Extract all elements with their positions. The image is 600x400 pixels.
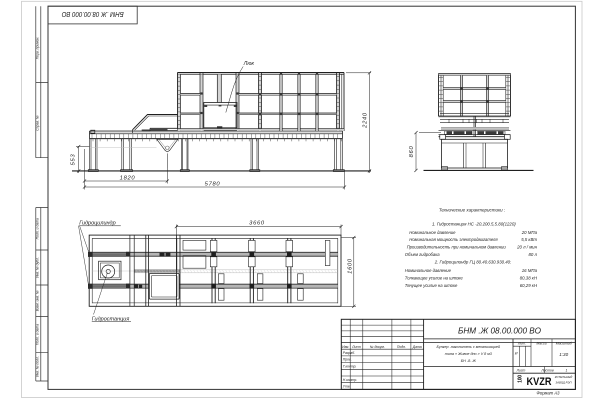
svg-text:60,29 кН: 60,29 кН [520,283,538,288]
svg-text:Подп.: Подп. [397,345,406,349]
svg-text:1:30: 1:30 [559,352,568,357]
svg-text:Лит.: Лит. [517,342,526,346]
svg-text:КОТЕЛЬНЫЙ: КОТЕЛЬНЫЙ [555,375,573,379]
svg-text:Перв. примен.: Перв. примен. [36,37,40,60]
svg-text:100: 100 [518,375,524,383]
svg-text:1: 1 [566,368,568,372]
svg-text:20 л / мин: 20 л / мин [516,245,538,250]
svg-text:Бункер -накопитель с механизац: Бункер -накопитель с механизацией [437,345,500,349]
svg-text:типа « Живое дно » V 8 м3: типа « Живое дно » V 8 м3 [445,352,493,356]
svg-text:Подп. и дата: Подп. и дата [36,218,40,239]
svg-text:553: 553 [71,154,77,166]
svg-text:1600: 1600 [348,258,354,274]
svg-text:Инв. № подл.: Инв. № подл. [36,356,40,377]
svg-text:Разраб.: Разраб. [343,351,355,355]
svg-text:Номинальное давление: Номинальное давление [405,268,452,273]
svg-text:БНМ .Ж 08.00.000 ВО: БНМ .Ж 08.00.000 ВО [62,10,124,19]
svg-text:Формат А3: Формат А3 [537,391,561,396]
svg-text:1820: 1820 [120,176,136,182]
svg-text:1. Гидростанция НС -20.200.5,: 1. Гидростанция НС -20.200.5,5.80(1220) [432,222,516,227]
svg-text:Люк: Люк [243,61,255,67]
svg-text:Листов: Листов [540,368,554,372]
svg-text:Инв. № дубл.: Инв. № дубл. [36,257,40,278]
svg-text:Взам. инв. №: Взам. инв. № [36,290,40,311]
svg-text:Масштаб: Масштаб [556,342,572,346]
svg-text:Дата: Дата [412,345,422,349]
svg-text:860: 860 [409,146,415,158]
svg-text:2240: 2240 [363,112,369,129]
svg-text:3660: 3660 [249,220,265,226]
svg-text:Технические характеристики :: Технические характеристики : [439,208,506,213]
svg-text:Подп. и дата: Подп. и дата [36,324,40,345]
svg-text:Объем гидробака: Объем гидробака [405,252,440,257]
svg-text:Номинальная мощность электрод: Номинальная мощность электродвигателя [409,237,498,242]
svg-text:16 МПа: 16 МПа [522,268,538,273]
svg-text:2. Гидроцилиндр ГЦ 80.40.630.: 2. Гидроцилиндр ГЦ 80.40.630.930.40: [434,260,512,265]
svg-text:Н.контр.: Н.контр. [343,378,357,382]
svg-text:№ докум.: № докум. [370,345,385,349]
svg-text:80,38 кН: 80,38 кН [520,276,538,281]
svg-text:Масса: Масса [536,342,546,346]
svg-text:Изм.: Изм. [342,345,349,349]
svg-text:Толкающее усилие на штоке: Толкающее усилие на штоке [405,276,464,281]
svg-text:KVZR: KVZR [527,376,552,388]
svg-text:Пров.: Пров. [343,358,352,362]
svg-text:Производительность при номина: Производительность при номинальном давле… [407,245,507,250]
svg-text:БН -8- Ж: БН -8- Ж [461,359,477,363]
svg-text:Т.контр.: Т.контр. [343,364,357,368]
svg-text:Утв.: Утв. [343,385,351,389]
svg-text:Лист: Лист [351,345,361,349]
svg-text:БНМ .Ж 08.00.000 ВО: БНМ .Ж 08.00.000 ВО [458,326,541,336]
svg-text:5,5 кВт: 5,5 кВт [521,237,537,242]
svg-text:Лист: Лист [516,368,526,372]
svg-text:20 МПа: 20 МПа [521,230,538,235]
svg-text:И: И [515,352,518,356]
svg-text:ЗАВОД РЭП: ЗАВОД РЭП [555,380,572,384]
svg-text:80 л: 80 л [529,252,538,257]
svg-text:Тянущее усилие на штоке: Тянущее усилие на штоке [405,283,458,288]
svg-text:5780: 5780 [205,182,221,188]
svg-text:Номинальное давление: Номинальное давление [409,230,456,235]
svg-text:Справ. №: Справ. № [36,115,40,131]
